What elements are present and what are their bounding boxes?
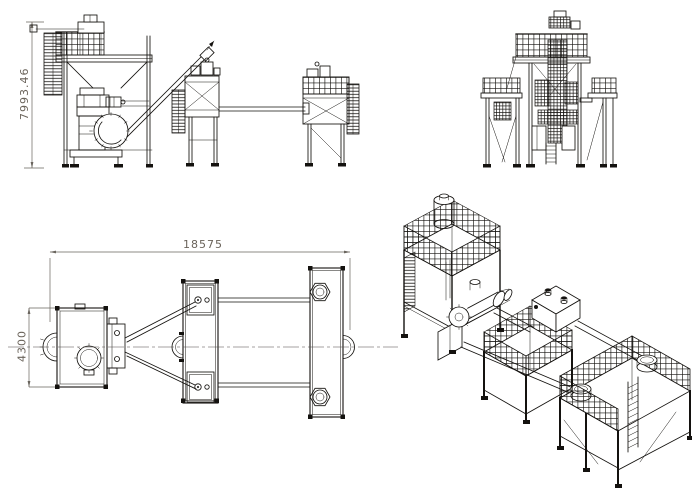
iso-right-platform <box>557 336 692 488</box>
feeder-unit-plan <box>107 318 125 374</box>
front-elevation-view: 7993.46 <box>18 15 359 168</box>
end-elevation-view <box>481 11 617 168</box>
height-dimension: 7993.46 <box>18 22 44 169</box>
stand1-plan <box>172 279 219 403</box>
mixer-flange <box>90 113 130 150</box>
mixer-motor <box>106 97 121 107</box>
stand2-plan <box>308 266 355 419</box>
length-dimension: 18575 <box>50 238 351 330</box>
transfer-conveyors-plan <box>218 298 310 387</box>
transfer-stand-2 <box>303 62 359 167</box>
mixer-tower <box>30 15 214 168</box>
dim-overall-length-label: 18575 <box>183 238 223 251</box>
top-feeder <box>549 17 570 28</box>
transfer-conveyor <box>219 103 309 114</box>
dim-overall-height-label: 7993.46 <box>18 68 31 121</box>
drawing-canvas: 7993.46 <box>0 0 692 491</box>
platform-railing <box>303 77 349 94</box>
side-platform-left <box>481 78 522 168</box>
isometric-view <box>401 194 692 488</box>
width-dimension: 4300 <box>16 308 56 388</box>
plan-view: 18575 4300 <box>8 238 398 419</box>
mixer-flange-plan <box>75 344 104 376</box>
transfer-stand-1 <box>172 58 220 167</box>
top-feeder <box>78 22 104 33</box>
engineering-drawing: 7993.46 <box>0 0 692 491</box>
side-platform-right <box>580 78 617 168</box>
dim-overall-width-label: 4300 <box>16 330 29 362</box>
access-ladder <box>546 143 556 164</box>
